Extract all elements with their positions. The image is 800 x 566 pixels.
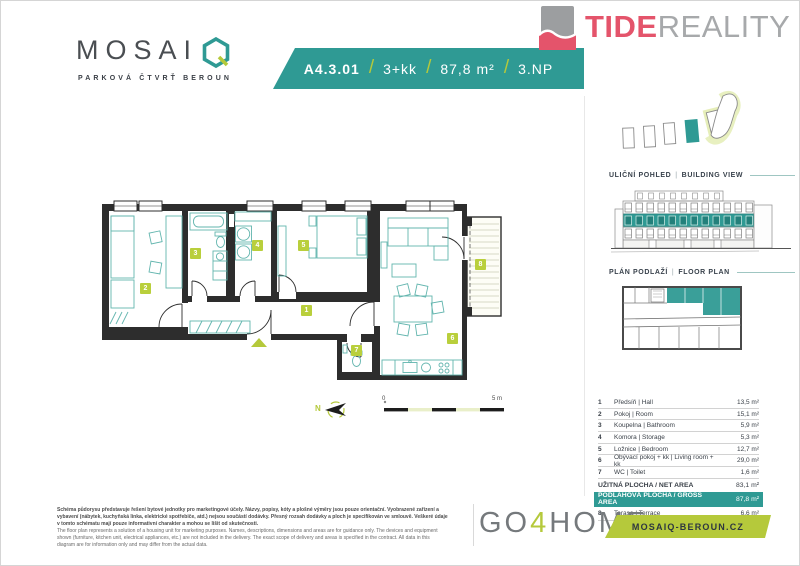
label-separator: | [672,269,674,276]
room-name: Ložnice | Bedroom [614,446,717,453]
site-plan-mini [601,86,791,156]
unit-layout: 3+kk [383,61,417,77]
mosaiq-logo: MOSAI [76,37,230,69]
room-area: 12,7 m² [717,446,759,453]
unit-floor: 3.NP [518,61,553,77]
gross-area-row: PODLAHOVÁ PLOCHA / GROSS AREA87,8 m² [594,492,763,507]
room-name: Pokoj | Room [614,411,717,418]
room-number: 3 [598,422,614,429]
north-arrow-icon [325,402,346,418]
tide-reality-logo: TIDEREALITY [585,11,790,42]
net-area-value: 83,1 m² [717,482,759,489]
room-label-storage: 4 [252,240,263,251]
room-area: 5,9 m² [717,422,759,429]
unit-area: 87,8 m² [440,61,494,77]
table-row: 7WC | Toilet1,6 m² [598,467,759,479]
room-area: 1,6 m² [717,469,759,476]
room-label-bathroom: 3 [190,248,201,259]
go4home-go: GO [479,507,530,539]
main-floor-plan: 1 2 3 4 5 6 7 8 N 0 5 m [89,184,589,434]
north-label: N [315,404,321,413]
room-area: 5,3 m² [717,434,759,441]
room-number: 5 [598,446,614,453]
room-number: 6 [598,457,614,464]
banner-slash: / [426,57,431,79]
building-view-label: ULIČNÍ POHLED | BUILDING VIEW [609,172,795,179]
floor-plan-mini [615,283,755,355]
banner-slash: / [369,57,374,79]
mosaiq-hexagon-q-icon [202,37,230,69]
disclaimer-czech: Schéma půdorysu představuje řešení bytov… [57,507,449,527]
room-name: WC | Toilet [614,469,717,476]
floorplan-sheet: MOSAI PARKOVÁ ČTVRŤ BEROUN A4.3.01 / 3+k… [0,0,800,566]
tide-logo-text: TIDE [585,9,658,44]
unit-banner: A4.3.01 / 3+kk / 87,8 m² / 3.NP [273,48,584,89]
room-name: Komora | Storage [614,434,717,441]
building-view-label-cz: ULIČNÍ POHLED [609,172,671,179]
banner-slash: / [504,57,509,79]
go4home-four: 4 [530,507,549,539]
room-area: 15,1 m² [717,411,759,418]
footer-divider [473,504,474,546]
scan-fold-line [584,96,585,496]
floor-plan-label: PLÁN PODLAŽÍ | FLOOR PLAN [609,269,795,276]
building-elevation [609,187,795,263]
room-label-hall: 1 [301,305,312,316]
website-url: MOSAIQ-BEROUN.CZ [632,522,744,532]
table-row: 4Komora | Storage5,3 m² [598,432,759,444]
table-row: 6Obývací pokoj + kk | Living room + kk29… [598,455,759,467]
room-area: 13,5 m² [717,399,759,406]
table-row: 1Předsíň | Hall13,5 m² [598,397,759,409]
mosaiq-logo-subtitle: PARKOVÁ ČTVRŤ BEROUN [78,75,232,82]
net-area-label: UŽITNÁ PLOCHA / NET AREA [598,482,717,489]
room-label-living: 6 [447,333,458,344]
mosaiq-logo-text: MOSAI [76,37,198,64]
room-label-wc: 7 [351,345,362,356]
room-area: 29,0 m² [717,457,759,464]
room-name: Předsíň | Hall [614,399,717,406]
net-area-row: UŽITNÁ PLOCHA / NET AREA83,1 m² [598,479,759,492]
gross-area-label: PODLAHOVÁ PLOCHA / GROSS AREA [598,492,717,506]
website-banner: MOSAIQ-BEROUN.CZ [605,515,771,538]
room-name: Obývací pokoj + kk | Living room + kk [614,454,717,468]
gross-area-value: 87,8 m² [717,496,759,503]
room-number: 7 [598,469,614,476]
floor-plan-drawing [89,184,589,434]
floor-plan-label-cz: PLÁN PODLAŽÍ [609,269,668,276]
room-number: 1 [598,399,614,406]
tide-reality-mark-icon [539,6,576,50]
label-rule [750,175,795,176]
label-separator: | [675,172,677,179]
room-label-terrace: 8 [475,259,486,270]
scale-zero-label: 0 [382,396,385,402]
room-number: 2 [598,411,614,418]
room-label-room: 2 [140,283,151,294]
floor-plan-label-en: FLOOR PLAN [678,269,730,276]
building-view-label-en: BUILDING VIEW [682,172,743,179]
unit-number: A4.3.01 [304,61,360,77]
room-area-table: 1Předsíň | Hall13,5 m² 2Pokoj | Room15,1… [598,397,759,521]
room-name: Koupelna | Bathroom [614,422,717,429]
disclaimer-english: The floor plan represents a solution of … [57,528,449,548]
disclaimer: Schéma půdorysu představuje řešení bytov… [57,507,449,549]
table-row: 2Pokoj | Room15,1 m² [598,409,759,421]
room-number: 4 [598,434,614,441]
reality-logo-text: REALITY [658,9,791,44]
room-label-bedroom: 5 [298,240,309,251]
table-row: 3Koupelna | Bathroom5,9 m² [598,420,759,432]
scale-bar [384,401,504,412]
site-plan-highlighted-building [685,120,699,143]
scale-end-label: 5 m [492,396,502,402]
label-rule [737,272,795,273]
